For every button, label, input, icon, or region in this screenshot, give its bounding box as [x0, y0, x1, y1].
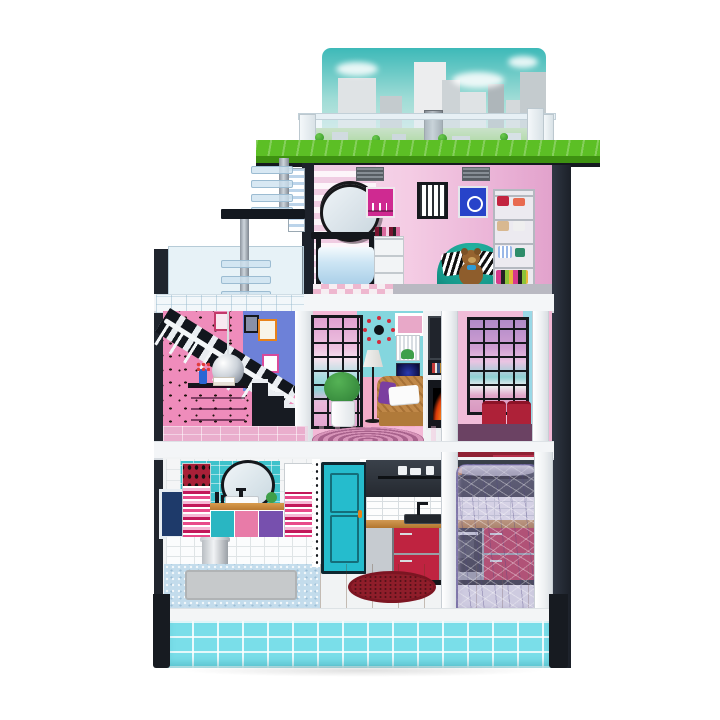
handbag-coral	[513, 198, 525, 206]
kitchen-cup	[398, 466, 407, 475]
cabinet-red-drawer	[394, 528, 439, 553]
towel-cabinet-left	[182, 463, 211, 541]
kitchen-round-rug	[348, 571, 436, 603]
clock-center	[374, 325, 384, 335]
handbag-red	[497, 196, 509, 206]
door-panel	[330, 473, 359, 513]
floor-lamp-pole	[372, 367, 374, 420]
magenta-dresser	[191, 386, 245, 430]
railing-top-bar	[298, 113, 556, 120]
teddy-bow	[467, 265, 476, 270]
door-handle	[358, 510, 362, 518]
bathroom-lower-tiles	[166, 537, 320, 567]
stair-step	[252, 379, 268, 431]
blue-vase	[199, 369, 207, 384]
kitchen-cup	[426, 466, 434, 475]
starburst-clock	[364, 316, 394, 344]
cabinet-top	[183, 464, 210, 486]
handbag-white	[513, 221, 525, 231]
ladder-rung	[251, 180, 293, 188]
ladder-platform	[221, 209, 305, 219]
red-ottoman	[482, 401, 506, 426]
bathroom-plant	[266, 492, 277, 503]
front-frame-rail	[441, 311, 458, 455]
tower-right-wall	[551, 165, 571, 668]
shoe-row	[496, 270, 528, 284]
handbag-striped	[498, 246, 512, 258]
necklace-art	[458, 186, 488, 218]
ceiling-vent	[462, 167, 490, 181]
white-pillow	[388, 385, 419, 406]
bathroom-counter	[210, 503, 284, 510]
front-frame-rail	[532, 311, 549, 455]
front-frame-rail	[534, 452, 553, 614]
ladder-rung	[221, 276, 271, 284]
striped-shelf-art	[417, 182, 448, 219]
cloud	[336, 62, 378, 76]
teddy-ear	[474, 248, 481, 255]
soap-bottle	[215, 492, 219, 503]
ladder-rung	[251, 194, 293, 202]
rattan-armchair	[377, 372, 427, 426]
dollhouse-product-photo	[0, 0, 720, 720]
makeup-items	[375, 227, 401, 236]
plant-shadowbox	[396, 335, 420, 361]
ladder-rung	[221, 260, 271, 268]
door-panel	[330, 515, 359, 563]
armchair-seat	[379, 412, 425, 426]
red-ottoman	[507, 401, 531, 426]
striped-towels	[183, 488, 210, 538]
kitchen-faucet	[417, 502, 420, 515]
ladder-rung	[251, 166, 293, 174]
cloud	[452, 72, 504, 88]
bathroom-faucet	[239, 488, 243, 497]
cloud	[508, 56, 538, 68]
cabinet-handle	[400, 533, 412, 535]
towel-shelf-right	[284, 463, 313, 541]
bath-mat	[185, 570, 297, 600]
makeup-drawer-cart	[374, 236, 404, 290]
picture-frame	[258, 319, 277, 341]
base-tiles	[167, 621, 551, 668]
base-foot-right	[549, 594, 568, 668]
handbag-green	[515, 248, 525, 257]
soap-bottle	[221, 495, 224, 503]
window-muntins	[470, 320, 526, 412]
red-flowers	[196, 362, 210, 371]
teddy-muzzle	[468, 257, 476, 263]
teddy-ear	[461, 248, 468, 255]
front-door	[321, 462, 367, 574]
cabinet-handle	[400, 560, 412, 562]
door-frame-dotted-left	[312, 459, 320, 567]
kitchen-sink	[404, 514, 442, 524]
pink-wall-frame	[395, 313, 425, 336]
perfume-shadowbox-art	[366, 187, 395, 218]
white-planter	[331, 401, 355, 427]
kitchen-cup	[410, 468, 421, 475]
book-stack	[213, 377, 235, 386]
base-foot-left	[153, 594, 170, 668]
elevator-pod	[456, 464, 540, 616]
handbag-tan	[497, 221, 509, 231]
vanity-tulle-skirt	[318, 247, 374, 285]
potted-plant-foliage	[324, 372, 360, 404]
vanity-table	[311, 232, 381, 239]
floor-shadow	[180, 664, 546, 677]
elevator-pod-top	[458, 465, 534, 476]
picture-frame	[244, 315, 259, 333]
roof-lawn	[256, 140, 600, 156]
striped-towels	[285, 492, 312, 538]
disco-ball-cord	[227, 311, 229, 357]
roof-front-edge	[256, 156, 600, 163]
ceiling-vent	[356, 167, 384, 181]
